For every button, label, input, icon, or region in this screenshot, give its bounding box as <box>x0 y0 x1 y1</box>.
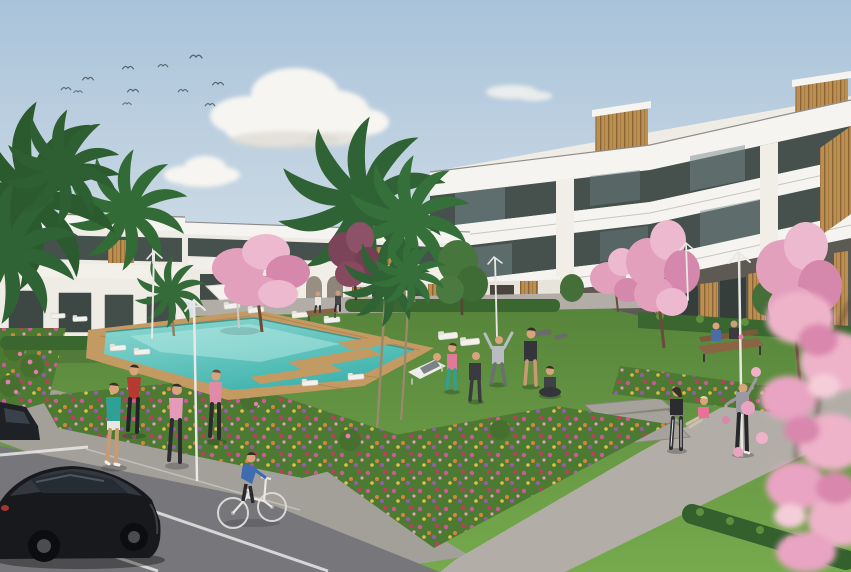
unit-divider <box>760 142 778 257</box>
green-tree <box>560 274 584 302</box>
residential-complex-render <box>0 0 851 572</box>
car-taillight <box>1 505 9 511</box>
rendered-photo <box>0 0 851 572</box>
